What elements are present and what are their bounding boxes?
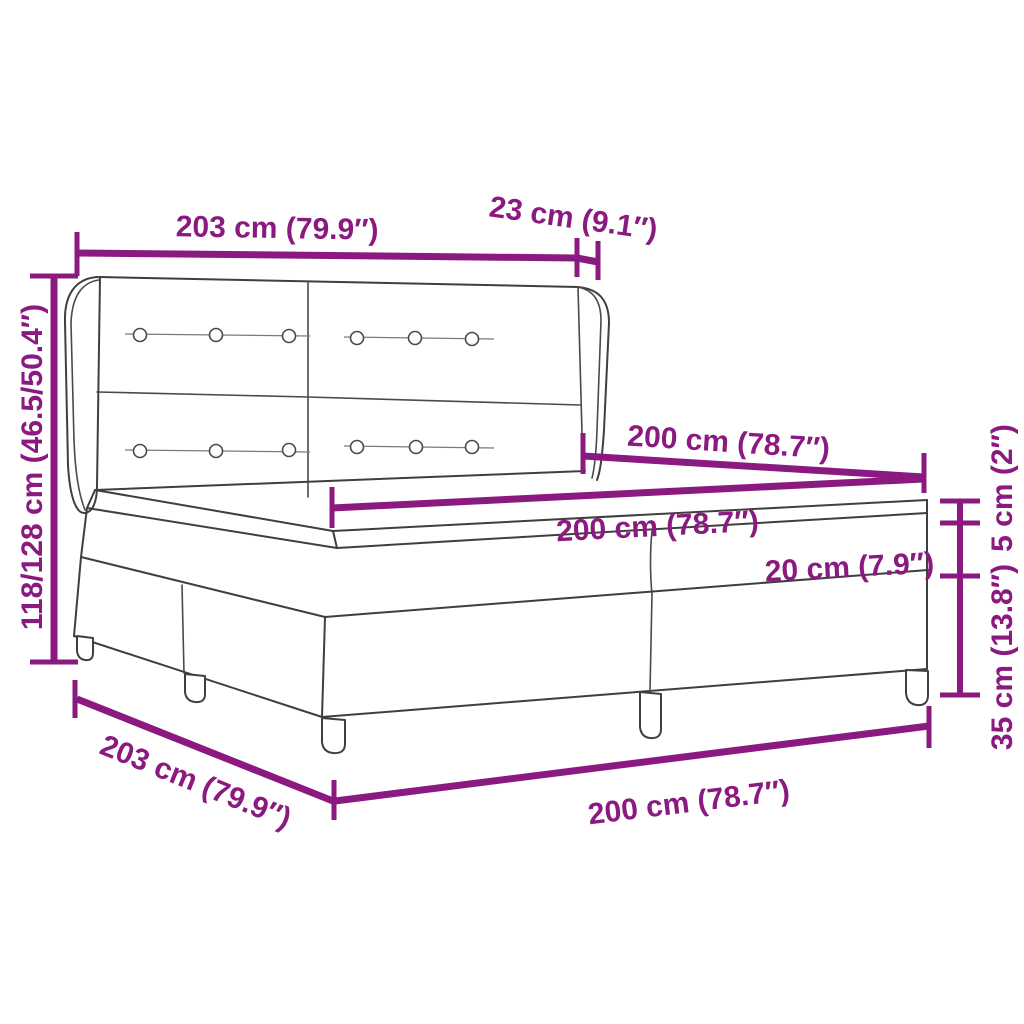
dim-headboard-side-depth: 23 cm (9.1″) bbox=[487, 190, 659, 280]
dim-bed-width-inner: 200 cm (78.7″) bbox=[332, 453, 924, 548]
dim-bed-width-bottom: 200 cm (78.7″) bbox=[335, 706, 929, 831]
button-icon bbox=[466, 333, 479, 346]
leg-foot-right bbox=[906, 670, 928, 705]
dimension-diagram: 203 cm (79.9″) 23 cm (9.1″) 118/128 cm (… bbox=[0, 0, 1024, 1024]
box-left-seam bbox=[182, 585, 184, 673]
dim-label-headboard-width: 203 cm (79.9″) bbox=[175, 210, 378, 247]
button-icon bbox=[351, 332, 364, 345]
mattress-rear-edge bbox=[95, 471, 585, 490]
dim-line bbox=[332, 479, 924, 508]
button-icon bbox=[410, 441, 423, 454]
dim-label-bed-width-inner: 200 cm (78.7″) bbox=[555, 505, 759, 549]
headboard-left-wing bbox=[65, 277, 100, 513]
headboard-top-edge bbox=[100, 277, 578, 287]
button-icon bbox=[466, 441, 479, 454]
dim-label-box-spring-height: 35 cm (13.8″) bbox=[986, 564, 1019, 750]
button-icon bbox=[134, 445, 147, 458]
dim-bed-length-top: 200 cm (78.7″) bbox=[583, 420, 924, 477]
topper-corner-edge bbox=[333, 531, 337, 548]
topper-top-left-edge bbox=[95, 490, 333, 531]
dim-label-mattress-height: 20 cm (7.9″) bbox=[764, 547, 935, 589]
mattress-left-endcap bbox=[81, 508, 87, 557]
bed-legs bbox=[77, 636, 928, 753]
button-icon bbox=[283, 444, 296, 457]
dim-label-total-height: 118/128 cm (46.5/50.4″) bbox=[16, 304, 49, 630]
topper-bottom-left-edge bbox=[87, 508, 337, 548]
button-icon bbox=[210, 445, 223, 458]
leg-rear-left bbox=[77, 636, 93, 660]
leg-front-corner bbox=[322, 718, 345, 753]
bed-drawing bbox=[65, 277, 928, 753]
button-icon bbox=[351, 441, 364, 454]
bed-diagram-canvas: 203 cm (79.9″) 23 cm (9.1″) 118/128 cm (… bbox=[0, 0, 1024, 1024]
box-corner-edge bbox=[322, 617, 325, 717]
box-left-endcap bbox=[74, 557, 81, 636]
leg-foot-middle bbox=[640, 692, 661, 738]
box-foot-center-seam bbox=[650, 594, 652, 691]
headboard-horizontal-seam bbox=[97, 392, 580, 405]
button-icon bbox=[283, 330, 296, 343]
tufting-buttons bbox=[134, 329, 479, 458]
dim-label-bed-width-bottom: 200 cm (78.7″) bbox=[586, 774, 791, 831]
button-icon bbox=[409, 332, 422, 345]
dim-bed-depth-bottom: 203 cm (79.9″) bbox=[75, 680, 334, 835]
dim-right-height-bracket: 5 cm (2″) 35 cm (13.8″) bbox=[940, 424, 1019, 750]
dim-line bbox=[77, 253, 577, 258]
dimension-annotations: 203 cm (79.9″) 23 cm (9.1″) 118/128 cm (… bbox=[16, 190, 1019, 835]
box-top-left-edge bbox=[81, 557, 325, 617]
dim-label-topper-height: 5 cm (2″) bbox=[986, 424, 1019, 552]
button-icon bbox=[210, 329, 223, 342]
dim-line bbox=[577, 258, 598, 262]
leg-left-middle bbox=[185, 674, 205, 702]
dim-line bbox=[335, 726, 929, 801]
dim-label-headboard-side-depth: 23 cm (9.1″) bbox=[487, 190, 659, 246]
button-icon bbox=[134, 329, 147, 342]
box-bottom-foot-edge bbox=[322, 669, 927, 717]
